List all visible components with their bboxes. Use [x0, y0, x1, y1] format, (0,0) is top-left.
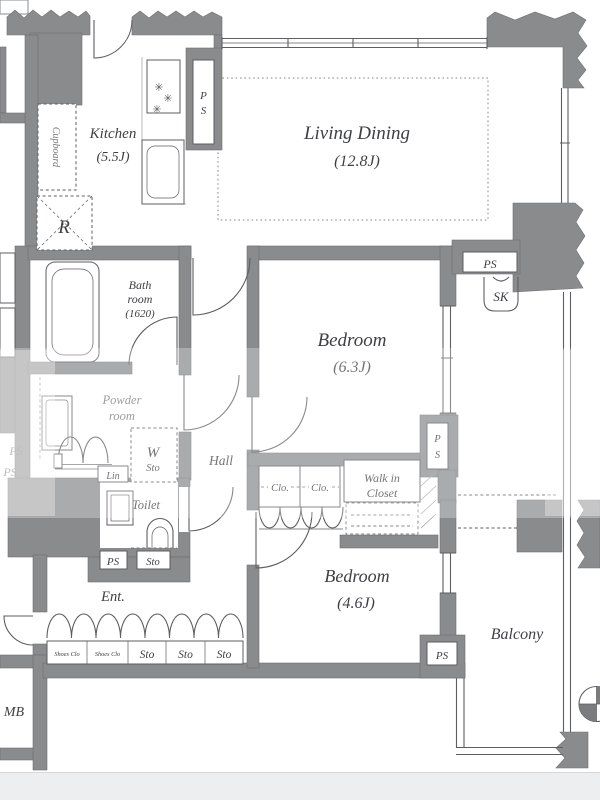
- shoes-closet-label: Shoes Clo: [95, 651, 120, 658]
- wall: [33, 555, 47, 612]
- kitchen-size-label: (5.5J): [96, 150, 129, 165]
- wall-meter-box: [0, 748, 33, 760]
- wall: [440, 593, 456, 638]
- kitchen-label: Kitchen: [89, 126, 137, 142]
- page-bottom-strip: [0, 772, 600, 800]
- storage-label: Sto: [217, 649, 232, 661]
- bathtub: [46, 262, 99, 362]
- watermark-band: [0, 350, 55, 516]
- survey-marker-quadrant: [597, 687, 600, 705]
- slop-sink-label: SK: [493, 289, 510, 304]
- cupboard-label: Cupboard: [50, 127, 61, 168]
- pipe-space-box: [193, 60, 214, 144]
- ps-label: P: [199, 90, 207, 102]
- wall: [513, 203, 585, 292]
- burner-icon: ✳: [154, 81, 163, 94]
- ps-label: PS: [106, 556, 120, 568]
- wall: [0, 47, 6, 113]
- wall: [248, 246, 460, 260]
- meter-box-label: MB: [3, 705, 25, 720]
- bath-size-label: (1620): [125, 308, 155, 320]
- entrance-label: Ent.: [100, 589, 125, 605]
- balcony-label: Balcony: [491, 626, 544, 643]
- living-size-label: (12.8J): [334, 153, 380, 170]
- floor-plan-page: Living Dining (12.8J) Kitchen (5.5J) Bed…: [0, 0, 600, 800]
- bath-label2: room: [128, 292, 153, 306]
- wall: [214, 35, 222, 49]
- neighbour-room: [0, 253, 15, 303]
- floor-plan-drawing: Living Dining (12.8J) Kitchen (5.5J) Bed…: [0, 0, 600, 800]
- ps-label: S: [201, 105, 207, 117]
- wall: [340, 535, 438, 548]
- bedroom1-label: Bedroom: [318, 330, 387, 351]
- ps-label: PS: [435, 650, 449, 662]
- ps-label: PS: [482, 257, 496, 271]
- bedroom2-size-label: (4.6J): [337, 595, 375, 612]
- wall: [25, 35, 38, 250]
- storage-label: Sto: [178, 649, 193, 661]
- burner-icon: ✳: [163, 92, 172, 105]
- living-label: Living Dining: [303, 123, 410, 144]
- burner-icon: ✳: [152, 103, 161, 116]
- storage-label: Sto: [146, 557, 159, 568]
- storage-label: Sto: [140, 649, 155, 661]
- wall: [247, 565, 259, 668]
- watermark-band: [545, 350, 600, 516]
- bedroom2-label: Bedroom: [324, 566, 389, 586]
- bath-label: Bath: [129, 278, 152, 292]
- refrigerator-label: R: [57, 217, 70, 238]
- watermark-band: [0, 348, 600, 518]
- shoes-closet-label: Shoes Clo: [54, 651, 79, 658]
